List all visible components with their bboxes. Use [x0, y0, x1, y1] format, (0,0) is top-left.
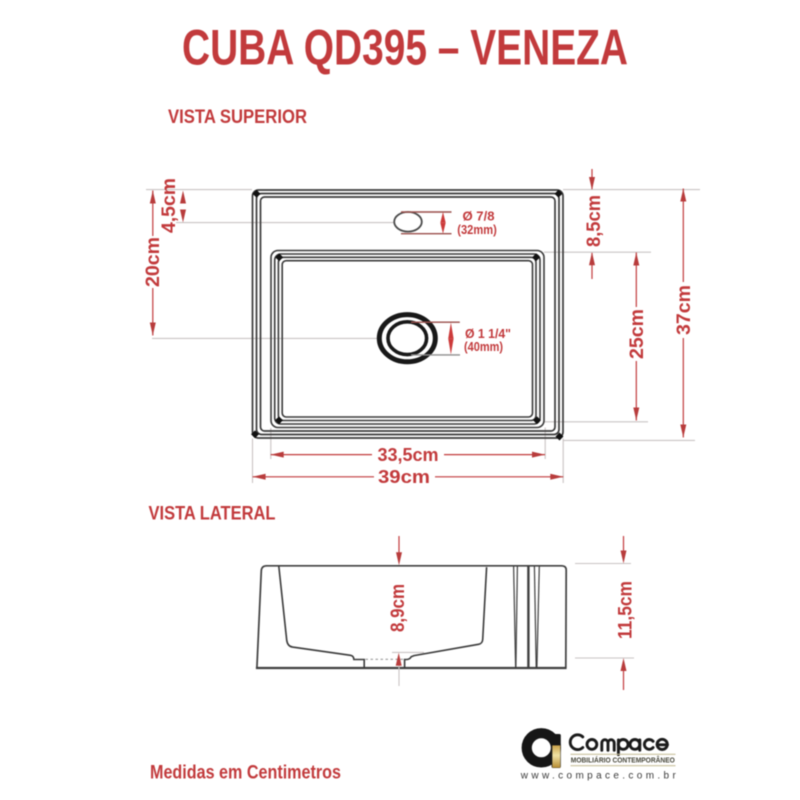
svg-text:VISTA LATERAL: VISTA LATERAL [149, 503, 276, 525]
svg-text:4,5cm: 4,5cm [159, 178, 180, 233]
svg-text:20cm: 20cm [143, 237, 164, 287]
svg-text:37cm: 37cm [674, 285, 695, 335]
svg-text:33,5cm: 33,5cm [377, 445, 438, 465]
svg-text:Medidas em Centimetros: Medidas em Centimetros [150, 762, 341, 783]
svg-text:MOBILIÁRIO CONTEMPORÂNEO: MOBILIÁRIO CONTEMPORÂNEO [571, 756, 676, 765]
svg-text:www.compace.com.br: www.compace.com.br [520, 771, 677, 782]
svg-text:8,9cm: 8,9cm [388, 584, 409, 632]
svg-text:25cm: 25cm [627, 309, 648, 359]
svg-text:(32mm): (32mm) [457, 222, 497, 237]
svg-text:39cm: 39cm [378, 467, 430, 487]
svg-text:(40mm): (40mm) [464, 339, 503, 354]
svg-text:VISTA SUPERIOR: VISTA SUPERIOR [168, 106, 307, 128]
svg-text:CUBA QD395 – VENEZA: CUBA QD395 – VENEZA [182, 20, 628, 76]
svg-text:11,5cm: 11,5cm [616, 581, 637, 639]
svg-text:8,5cm: 8,5cm [584, 195, 605, 247]
